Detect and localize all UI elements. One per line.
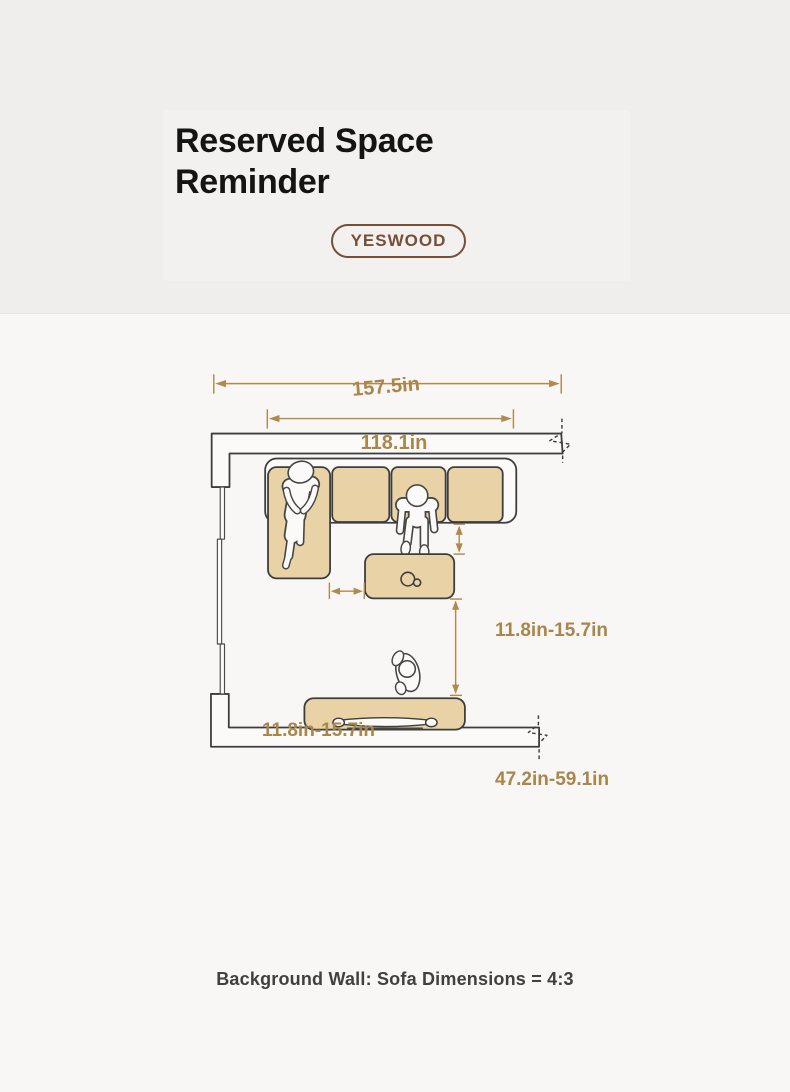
page-title: Reserved Space Reminder — [175, 121, 434, 203]
diagram-caption: Background Wall: Sofa Dimensions = 4:3 — [0, 969, 790, 990]
cup-handle-icon — [414, 579, 421, 586]
coffee-table — [365, 554, 454, 598]
brand-badge: YESWOOD — [331, 224, 466, 258]
dimension-label-sofa-to-table: 11.8in-15.7in — [495, 620, 608, 642]
sofa-cushion — [448, 467, 503, 522]
cup-icon — [401, 572, 415, 586]
title-line-1: Reserved Space — [175, 121, 434, 162]
header-section: Reserved Space Reminder YESWOOD — [0, 0, 790, 314]
dimension-label-sofa-width: 118.1in — [324, 432, 464, 455]
title-line-2: Reminder — [175, 162, 434, 203]
dimension-sofa-to-table-arrow — [453, 524, 464, 554]
sofa-cushion — [332, 467, 389, 522]
person-standing-icon — [390, 649, 424, 696]
page: Reserved Space Reminder YESWOOD — [0, 0, 790, 1092]
window-left — [217, 487, 224, 694]
floor-plan-diagram: 157.5in 118.1in 11.8in-15.7in 11.8in-15.… — [0, 313, 790, 1092]
dimension-table-to-tv-arrow — [450, 599, 462, 695]
dimension-label-chaise-to-table: 11.8in-15.7in — [262, 720, 375, 742]
dimension-label-table-to-tv: 47.2in-59.1in — [495, 769, 609, 791]
dimension-sofa-width-arrow — [267, 409, 513, 428]
dimension-chaise-to-table-arrow — [329, 583, 364, 599]
